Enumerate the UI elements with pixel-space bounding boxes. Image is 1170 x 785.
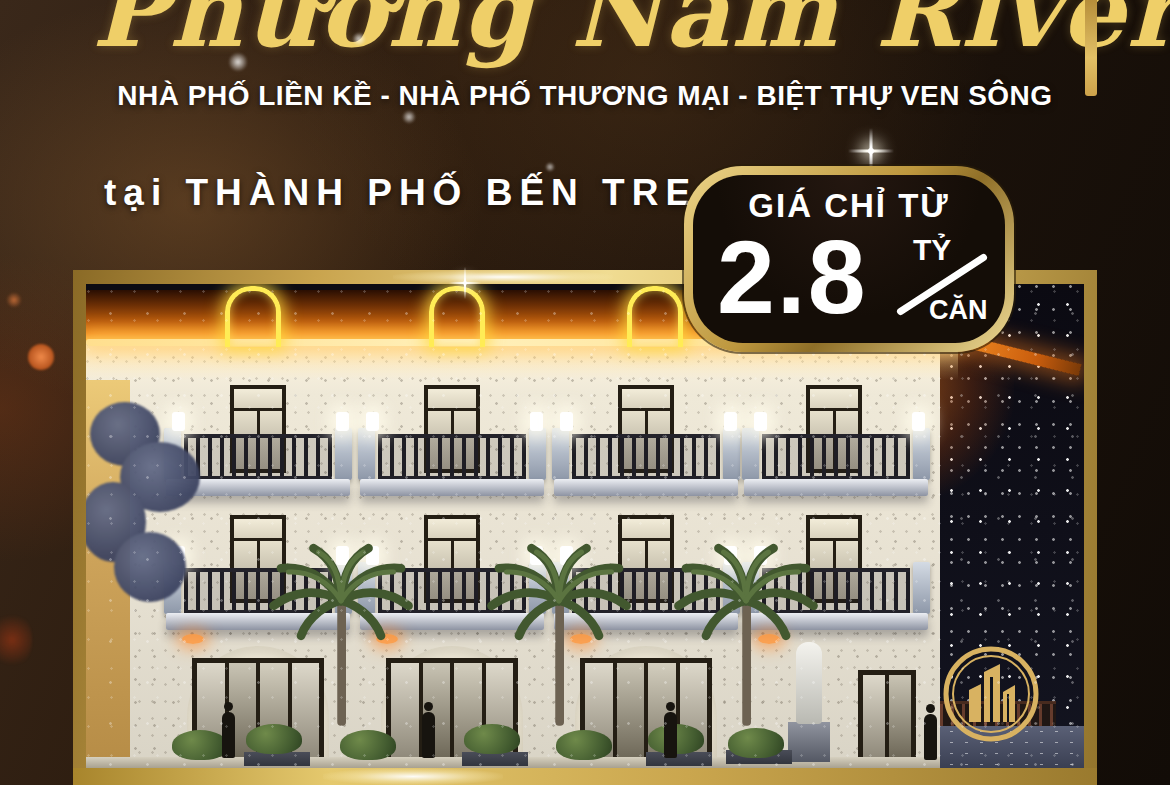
balcony	[748, 432, 924, 496]
sconce-light	[560, 412, 573, 431]
sconce-light	[336, 412, 349, 431]
brand-logo-icon	[941, 644, 1041, 744]
price-unit-numerator: TỶ	[913, 233, 951, 267]
sconce-light	[912, 412, 925, 431]
bush	[556, 730, 612, 760]
person-silhouette	[664, 712, 677, 758]
project-subtitle: NHÀ PHỐ LIỀN KỀ - NHÀ PHỐ THƯƠNG MẠI - B…	[0, 80, 1170, 112]
balcony	[364, 432, 540, 496]
neon-arch-icon	[225, 286, 281, 347]
frame-bottom-bar	[73, 768, 1097, 785]
bokeh-dot	[6, 292, 22, 308]
bokeh-dot	[28, 344, 54, 370]
bush	[340, 730, 396, 760]
sconce-light	[366, 412, 379, 431]
bokeh-dot	[0, 610, 32, 670]
location-line: tại THÀNH PHỐ BẾN TRE	[104, 172, 697, 214]
bush	[172, 730, 228, 760]
building-photo	[86, 284, 1084, 768]
price-amount: 2.8	[717, 225, 868, 329]
sparkle-icon	[449, 267, 481, 299]
bokeh-dot	[402, 110, 416, 124]
sconce-light	[724, 412, 737, 431]
bokeh-dot	[352, 32, 366, 46]
price-badge-core: GIÁ CHỈ TỪ 2.8 TỶ CĂN	[693, 175, 1005, 343]
bokeh-dot	[228, 52, 248, 72]
palm-tree-icon	[484, 502, 634, 762]
sconce-light	[754, 412, 767, 431]
under-balcony-light	[182, 634, 204, 644]
person-silhouette	[924, 714, 937, 760]
tree	[86, 392, 210, 632]
frame-bottom-shine	[323, 768, 503, 785]
planter	[462, 752, 528, 766]
bush	[246, 724, 302, 754]
price-unit-denominator: CĂN	[929, 295, 988, 326]
person-silhouette	[222, 712, 235, 758]
storefront-door	[858, 670, 916, 758]
poster: { "title": "Phương Nam River Park", "sub…	[0, 0, 1170, 785]
neon-arch-icon	[627, 286, 683, 347]
balcony	[558, 432, 734, 496]
bush	[728, 728, 784, 758]
person-silhouette	[422, 712, 435, 758]
palm-tree-icon	[671, 502, 821, 762]
planter	[646, 752, 712, 766]
palm-tree-icon	[266, 502, 416, 762]
price-badge: GIÁ CHỈ TỪ 2.8 TỶ CĂN	[684, 166, 1014, 352]
frame-shine	[393, 270, 613, 284]
bush	[464, 724, 520, 754]
bokeh-dot	[545, 162, 555, 172]
planter	[244, 752, 310, 766]
sconce-light	[530, 412, 543, 431]
